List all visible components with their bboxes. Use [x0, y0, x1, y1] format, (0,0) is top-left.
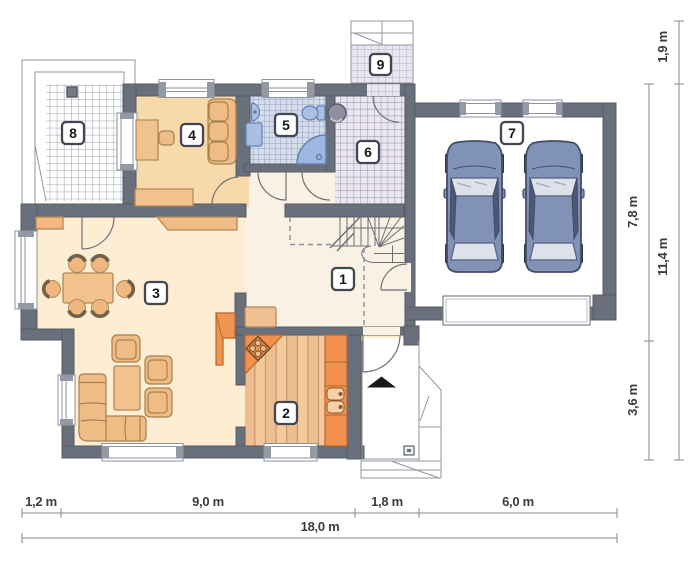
- svg-text:9,0 m: 9,0 m: [192, 494, 224, 509]
- svg-text:11,4 m: 11,4 m: [655, 238, 670, 276]
- svg-text:1,8 m: 1,8 m: [371, 494, 403, 509]
- svg-text:5: 5: [282, 117, 290, 133]
- svg-text:2: 2: [282, 405, 290, 421]
- svg-text:4: 4: [188, 127, 196, 143]
- svg-text:7,8 m: 7,8 m: [625, 196, 640, 228]
- svg-text:6: 6: [364, 144, 372, 160]
- svg-text:1,2 m: 1,2 m: [25, 494, 57, 509]
- svg-text:8: 8: [69, 125, 77, 141]
- svg-text:18,0 m: 18,0 m: [301, 519, 340, 534]
- svg-text:1,9 m: 1,9 m: [655, 31, 670, 63]
- svg-text:6,0 m: 6,0 m: [502, 494, 534, 509]
- svg-text:7: 7: [508, 125, 516, 141]
- svg-text:3: 3: [152, 285, 160, 301]
- svg-text:3,6 m: 3,6 m: [625, 384, 640, 416]
- svg-text:9: 9: [377, 57, 385, 73]
- svg-text:1: 1: [339, 271, 347, 287]
